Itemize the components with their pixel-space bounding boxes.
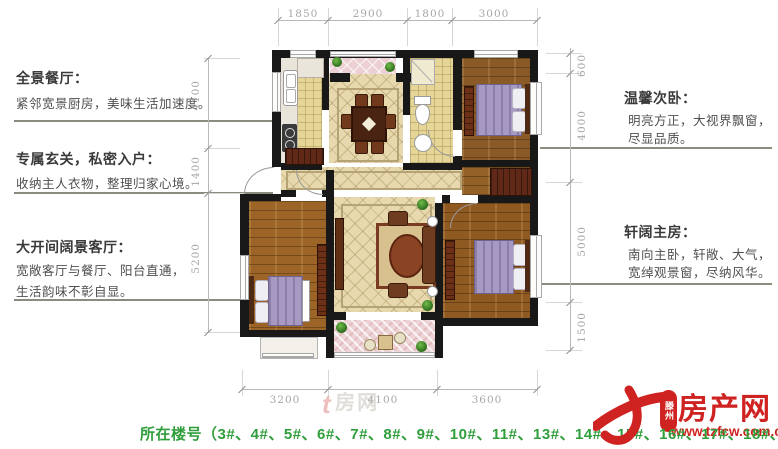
chair xyxy=(371,141,384,154)
pillow xyxy=(255,302,269,323)
wall xyxy=(281,190,296,197)
note-entry-line: 收纳主人衣物，整理归家心境。 xyxy=(16,173,198,192)
armchair xyxy=(388,211,408,226)
wall xyxy=(435,312,443,358)
window xyxy=(272,72,281,112)
extension-line xyxy=(546,182,582,183)
leader-line xyxy=(540,283,772,285)
logo-swoosh-icon xyxy=(593,384,665,446)
shower xyxy=(411,59,435,85)
dim-bottom-3: 3600 xyxy=(465,394,509,406)
extension-line xyxy=(452,8,453,46)
chair xyxy=(355,94,368,107)
dim-line-left xyxy=(208,58,209,332)
stool xyxy=(394,332,406,344)
dim-top-2: 2900 xyxy=(346,8,390,20)
bed xyxy=(268,276,303,326)
shower-line xyxy=(411,60,432,83)
pillow xyxy=(512,88,526,109)
side-table xyxy=(427,286,438,297)
note-master-line2: 宽绰观景窗，尽纳风华。 xyxy=(628,262,771,281)
note-entry-title: 专属玄关，私密入户： xyxy=(16,149,161,169)
note-living-line2: 生活韵味不彰自显。 xyxy=(16,281,133,300)
sofa xyxy=(422,226,436,284)
leader-line xyxy=(540,147,772,149)
rug-oval xyxy=(389,234,425,278)
kitchen-sink xyxy=(283,70,298,106)
window xyxy=(330,51,396,57)
note-bedroom2-line1: 明亮方正，大视界飘窗， xyxy=(628,110,771,129)
dim-top-1: 1850 xyxy=(281,8,325,20)
extension-line xyxy=(546,302,582,303)
window xyxy=(334,352,435,358)
headboard xyxy=(525,84,530,134)
wardrobe xyxy=(317,244,327,316)
headboard xyxy=(525,240,530,292)
floorplan xyxy=(238,48,540,368)
plant-icon xyxy=(422,300,433,311)
note-bedroom2-title: 温馨次卧： xyxy=(624,88,697,108)
note-living-line1: 宽敞客厅与餐厅、阳台直通， xyxy=(16,260,185,279)
pillow xyxy=(512,111,526,132)
wall xyxy=(453,50,462,130)
chair xyxy=(341,114,352,129)
pillow xyxy=(255,280,269,301)
window xyxy=(474,50,518,58)
plant-icon xyxy=(385,62,395,72)
wall xyxy=(330,73,350,82)
plant-icon xyxy=(417,199,428,210)
extension-line xyxy=(204,332,240,333)
floorplan-page: { "left_notes": [ {"title": "全景餐厅：", "li… xyxy=(0,0,778,449)
wall xyxy=(443,318,538,326)
note-dining-line: 紧邻宽景厨房，美味生活加速度。 xyxy=(16,93,211,112)
bay-window xyxy=(530,235,542,298)
chair xyxy=(371,94,384,107)
dim-right-3: 5000 xyxy=(576,226,588,257)
window xyxy=(262,353,314,358)
extension-line xyxy=(437,370,438,396)
dim-line-bottom xyxy=(242,389,537,390)
wash-basin xyxy=(414,134,432,152)
dim-line-right xyxy=(570,48,571,352)
window xyxy=(290,50,316,58)
side-table xyxy=(427,216,438,227)
sink-basin xyxy=(286,89,296,103)
plant-icon xyxy=(332,57,342,67)
wall xyxy=(240,330,332,337)
dresser xyxy=(490,168,532,196)
bed xyxy=(474,240,514,294)
dim-bottom-1: 3200 xyxy=(263,394,307,406)
window xyxy=(240,255,249,300)
bedroom3-door-arc xyxy=(296,170,323,195)
wall xyxy=(403,163,462,170)
wall xyxy=(442,195,450,203)
tv-cabinet xyxy=(335,218,344,290)
wall xyxy=(326,312,334,358)
dim-right-4: 1500 xyxy=(576,312,588,343)
note-master-title: 轩阔主房： xyxy=(624,222,697,242)
wall xyxy=(530,298,538,326)
dim-left-2: 1400 xyxy=(190,156,202,187)
watermark-mark-icon: t xyxy=(322,389,331,419)
sink-basin xyxy=(286,74,296,88)
extension-line xyxy=(546,350,582,351)
extension-line xyxy=(278,8,279,46)
extension-line xyxy=(242,370,243,396)
wardrobe xyxy=(445,240,455,300)
note-master-line1: 南向主卧，轩敞、大气， xyxy=(628,244,771,263)
bed-bench xyxy=(302,280,310,322)
stool xyxy=(364,339,376,351)
extension-line xyxy=(328,8,329,46)
bay-window xyxy=(530,82,542,135)
wall xyxy=(462,160,538,167)
note-dining-title: 全景餐厅： xyxy=(16,68,89,88)
watermark: t 房网 xyxy=(322,386,379,420)
extension-line xyxy=(537,370,538,396)
plant-icon xyxy=(416,341,427,352)
extension-line xyxy=(204,58,240,59)
wardrobe xyxy=(464,86,474,136)
wall xyxy=(403,55,410,115)
site-logo xyxy=(593,382,778,446)
table-decor xyxy=(362,117,376,131)
wall xyxy=(326,170,334,330)
dim-left-1: 4100 xyxy=(190,80,202,111)
extension-line xyxy=(537,8,538,46)
balcony-table xyxy=(378,335,393,350)
armchair xyxy=(388,283,408,298)
kitchen-worktop xyxy=(297,58,324,78)
burner-icon xyxy=(285,128,295,138)
wall xyxy=(530,50,538,82)
entry-door-arc xyxy=(244,167,274,194)
plant-icon xyxy=(336,322,347,333)
dim-left-3: 5200 xyxy=(190,243,202,274)
dim-top-4: 3000 xyxy=(472,8,516,20)
dining-table xyxy=(351,106,387,142)
extension-line xyxy=(204,148,240,149)
chair xyxy=(385,114,396,129)
dim-top-3: 1800 xyxy=(408,8,452,20)
watermark-text: 房网 xyxy=(335,392,379,414)
chair xyxy=(355,141,368,154)
wall xyxy=(478,195,538,203)
dim-right-2: 4000 xyxy=(576,110,588,141)
shoe-cabinet xyxy=(285,148,324,165)
headboard xyxy=(249,276,254,324)
note-bedroom2-line2: 尽显品质。 xyxy=(628,128,693,147)
note-living-title: 大开间阔景客厅： xyxy=(16,237,132,257)
dim-right-1: 600 xyxy=(576,54,588,77)
